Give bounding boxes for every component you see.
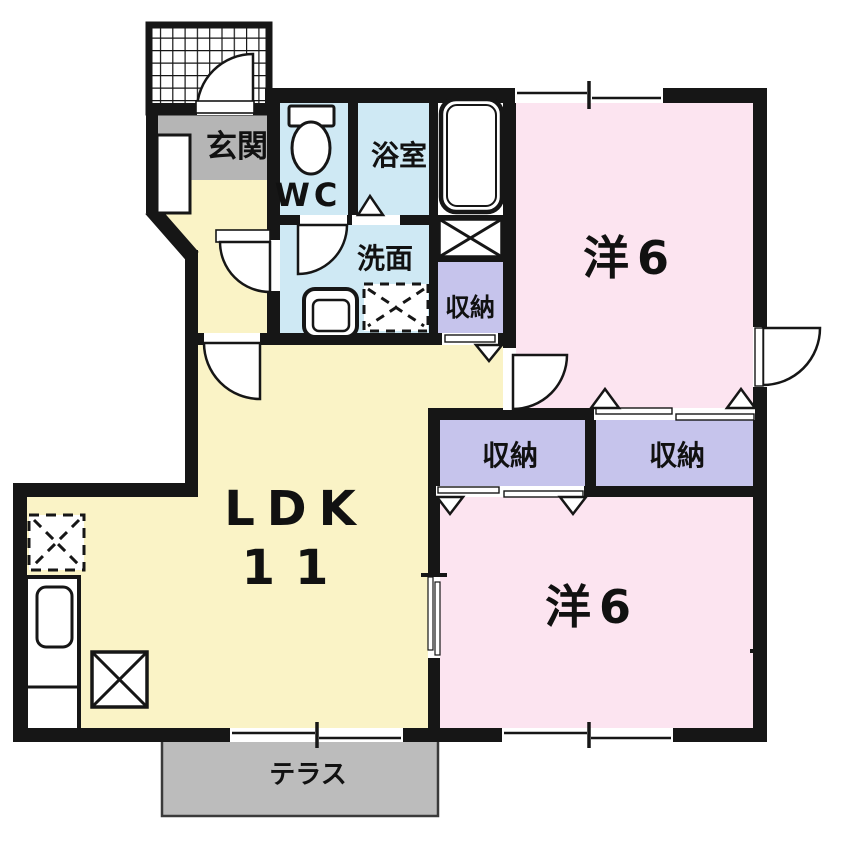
label-genkan: 玄関 [206,129,268,165]
door-hall-washroom-leaf [216,230,270,242]
slide-closet-small-leaf [445,335,495,342]
slide-ldk-leaf1 [428,577,433,650]
label-bath: 浴室 [371,139,427,172]
door-exterior-leaf [755,328,763,386]
label-closet-right: 収納 [649,439,705,472]
label-washroom: 洗面 [357,242,413,275]
label-terrace: テラス [269,760,346,790]
wall-washroom-strip [429,98,438,345]
bathtub-outer [441,99,502,212]
label-wc: WC [275,176,342,214]
floorplan-svg: 玄関 WC 浴室 洗面 収納 収納 収納 洋6 洋6 LDK 11 テラス [0,0,846,846]
label-western-top: 洋6 [583,231,677,285]
right-wall-tick [750,649,759,653]
wall-wc-bath [348,103,358,223]
slide-ldk-leaf2 [435,582,440,655]
wall-closet-mid [585,415,596,495]
slide-closet-left-leaf1 [438,487,499,493]
floorplan-page: 玄関 WC 浴室 洗面 収納 収納 収納 洋6 洋6 LDK 11 テラス [0,0,846,846]
door-exterior-swing [763,328,820,385]
opening-bath-door [352,215,400,225]
label-closet-small: 収納 [445,293,495,322]
label-ldk: LDK [224,481,368,537]
label-closet-left: 収納 [482,439,538,472]
opening-wc-door [300,215,347,225]
kitchen-sink [37,587,72,647]
label-western-bottom: 洋6 [545,580,639,634]
slide-closet-right-leaf2 [676,414,754,420]
wall-left-mid [185,250,198,497]
door-entry-leaf [196,101,254,113]
toilet-bowl [292,122,330,174]
wall-step [13,483,198,497]
shoe-cabinet [157,135,190,213]
label-ldk-size: 11 [242,540,349,596]
